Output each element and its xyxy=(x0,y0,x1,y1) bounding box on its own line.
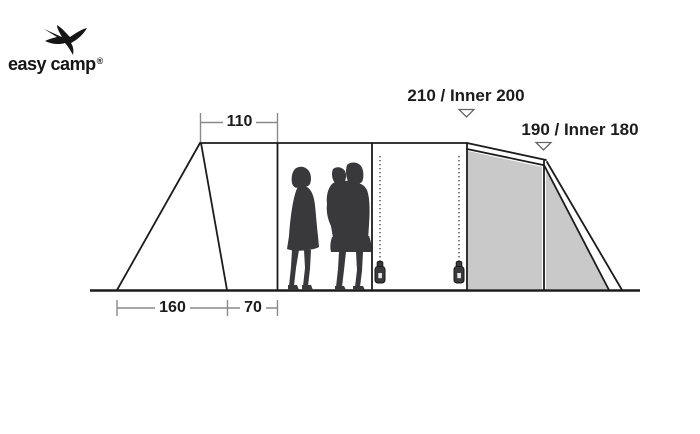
shaded-panel-rear xyxy=(468,151,542,289)
registered-mark: ® xyxy=(97,56,103,66)
tent-dimension-diagram: easy camp® 110 160 70 210 / Inner 200 19… xyxy=(0,0,700,434)
down-arrow-icon xyxy=(536,143,551,151)
guy-line xyxy=(117,143,200,290)
zippers xyxy=(375,156,464,283)
brand-wordmark: easy camp® xyxy=(8,54,118,75)
label-rear-height: 190 / Inner 180 xyxy=(510,121,650,139)
down-arrow-icon xyxy=(459,110,474,118)
dimension-ground-right: 70 xyxy=(228,300,278,316)
label-center-height: 210 / Inner 200 xyxy=(396,87,536,105)
zipper-pull-icon xyxy=(375,262,385,284)
people-silhouette xyxy=(287,162,371,290)
dimension-top-width: 110 xyxy=(201,114,278,130)
swallow-icon xyxy=(44,25,87,55)
front-pole-line xyxy=(201,143,227,290)
brand-name: easy camp xyxy=(8,54,96,74)
dimension-ground-left: 160 xyxy=(117,300,228,316)
zipper-pull-icon xyxy=(454,262,464,284)
